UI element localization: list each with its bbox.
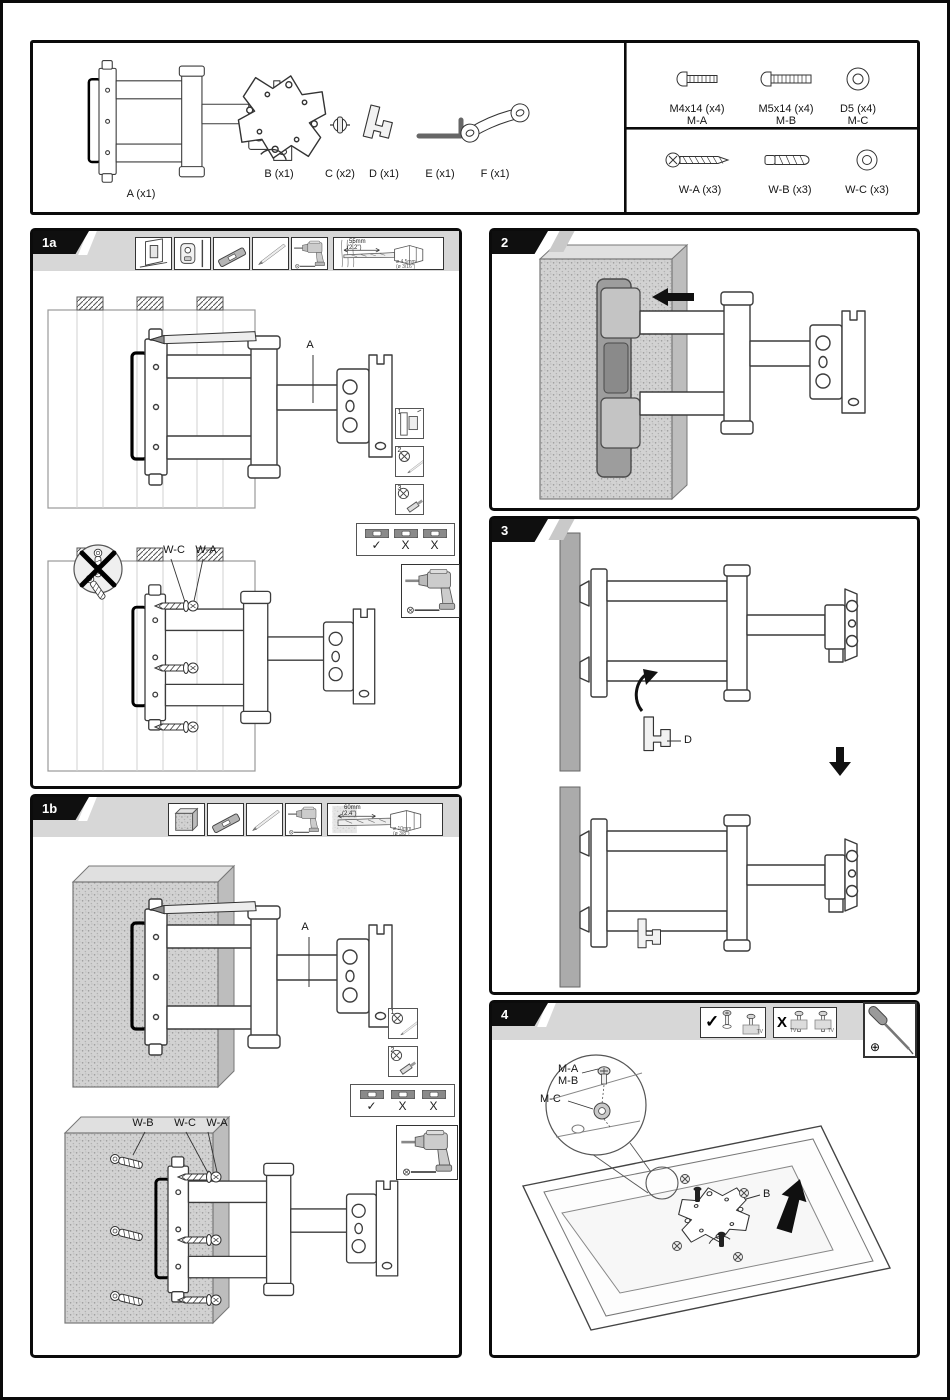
step-box-3: 3 [395,484,424,515]
step-box-1: 1 [395,408,424,439]
callout-wa-1b: W-A [206,1117,227,1130]
hw-mc-sub: M-C [848,115,869,128]
callout-wb-1b: W-B [132,1117,153,1130]
part-b-plate-icon [232,67,332,167]
part-f-wrench-icon [458,101,532,145]
callout-b: B [763,1188,770,1201]
callout-d: D [684,734,692,747]
hw-wa-label: W-A (x3) [679,184,722,197]
drill-dia-inches: (ø 3/8") [393,832,410,837]
part-c-label: C (x2) [325,168,355,181]
clip-d [644,717,670,751]
section-2-drawing [492,231,917,508]
drill-bit-spec-1b: 60mm (2.4") ø 10mm (ø 3/8") [327,803,443,836]
callout-a-1b: A [301,921,308,934]
drill-bit-spec-1a: 55mm (2.2") ø 4.5mm (ø 3/16") [333,237,444,270]
drill-depth-inches: (2.4") [342,811,356,817]
check-no: X [429,1100,437,1112]
section-4: 4 ✓ TV X [489,1000,920,1358]
concrete-wall-icon [168,803,205,836]
part-b-label: B (x1) [264,168,293,181]
part-e-label: E (x1) [425,168,454,181]
level-tool-icon [213,237,250,270]
phillips-symbol: ⊕ [870,1040,880,1054]
section-1b: 1b 60mm (2.4") ø 10mm (ø 3/8") [30,794,462,1358]
check-no: X [401,539,409,551]
pencil-icon [252,237,289,270]
hw-mb-sub: M-B [776,115,796,128]
callout-wc-1a: W-C [163,544,185,557]
check-no: X [777,1014,787,1031]
section-4-drawing [492,1003,917,1355]
pencil-icon [246,803,283,836]
hw-wc-label: W-C (x3) [845,184,889,197]
stud-finder-icon [174,237,211,270]
check-ok: ✓ [371,539,381,551]
check-ok: ✓ [705,1012,719,1032]
callout-mb: M-B [558,1075,578,1088]
step-box-1: 1 [388,1008,418,1039]
section-1a: 1a 55mm (2.2") ø 4.5mm (ø 3/16") [30,228,462,789]
part-a-label: A (x1) [127,188,156,201]
section-3: 3 D [489,516,920,995]
hw-mb-label: M5x14 (x4) [758,103,813,116]
level-tool-icon [207,803,244,836]
hw-ma-sub: M-A [687,115,707,128]
part-d-clip-icon [363,105,395,142]
stud-corner-icon [135,237,172,270]
hw-wb-label: W-B (x3) [768,184,811,197]
callout-wa-1a: W-A [195,544,216,557]
down-arrow [829,747,851,776]
part-c-spacer-icon [330,117,350,133]
section-3-drawing [492,519,917,992]
callout-wc-1b: W-C [174,1117,196,1130]
drill-depth-inches: (2.2") [347,245,361,251]
parts-panel: A (x1) B (x1) C (x2) D (x1) E (x1) F (x1… [30,40,920,215]
tv-tag: TV [828,1029,834,1034]
screw-mb-icon [761,72,811,86]
lag-screw-wa-icon [666,153,728,167]
screw-ma-icon [677,72,717,86]
level-check-box-1a: ✓ X X [356,523,455,556]
tv-tag: TV [790,1029,796,1034]
drill-dia-inches: (ø 3/16") [396,265,415,270]
drill-step-box-1b [396,1125,458,1180]
correct-screw-box: ✓ TV [700,1007,766,1038]
wrong-screw-box: X TV TV [773,1007,837,1038]
hw-ma-label: M4x14 (x4) [669,103,724,116]
washer-wc-icon [857,150,877,170]
tv-tag: TV [757,1030,763,1035]
hw-mc-label: D5 (x4) [840,103,876,116]
section-2: 2 [489,228,920,511]
level-check-box-1b: ✓ X X [350,1084,455,1117]
part-d-label: D (x1) [369,168,399,181]
screwdriver-box: ⊕ [863,1002,917,1058]
step-box-2: 2 [395,446,424,477]
drill-step-box-1a [401,564,460,618]
part-f-label: F (x1) [481,168,510,181]
drill-icon [291,237,328,270]
step-box-2: 2 [388,1046,418,1077]
washer-mc-icon [847,68,869,90]
callout-mc: M-C [540,1093,561,1106]
anchor-wb-icon [765,156,809,165]
callout-a-1a: A [306,339,313,352]
check-no: X [430,539,438,551]
drill-icon [285,803,322,836]
check-ok: ✓ [366,1100,376,1112]
part-e-allen-key-icon [419,120,461,136]
check-no: X [398,1100,406,1112]
callout-ma: M-A [558,1063,578,1076]
